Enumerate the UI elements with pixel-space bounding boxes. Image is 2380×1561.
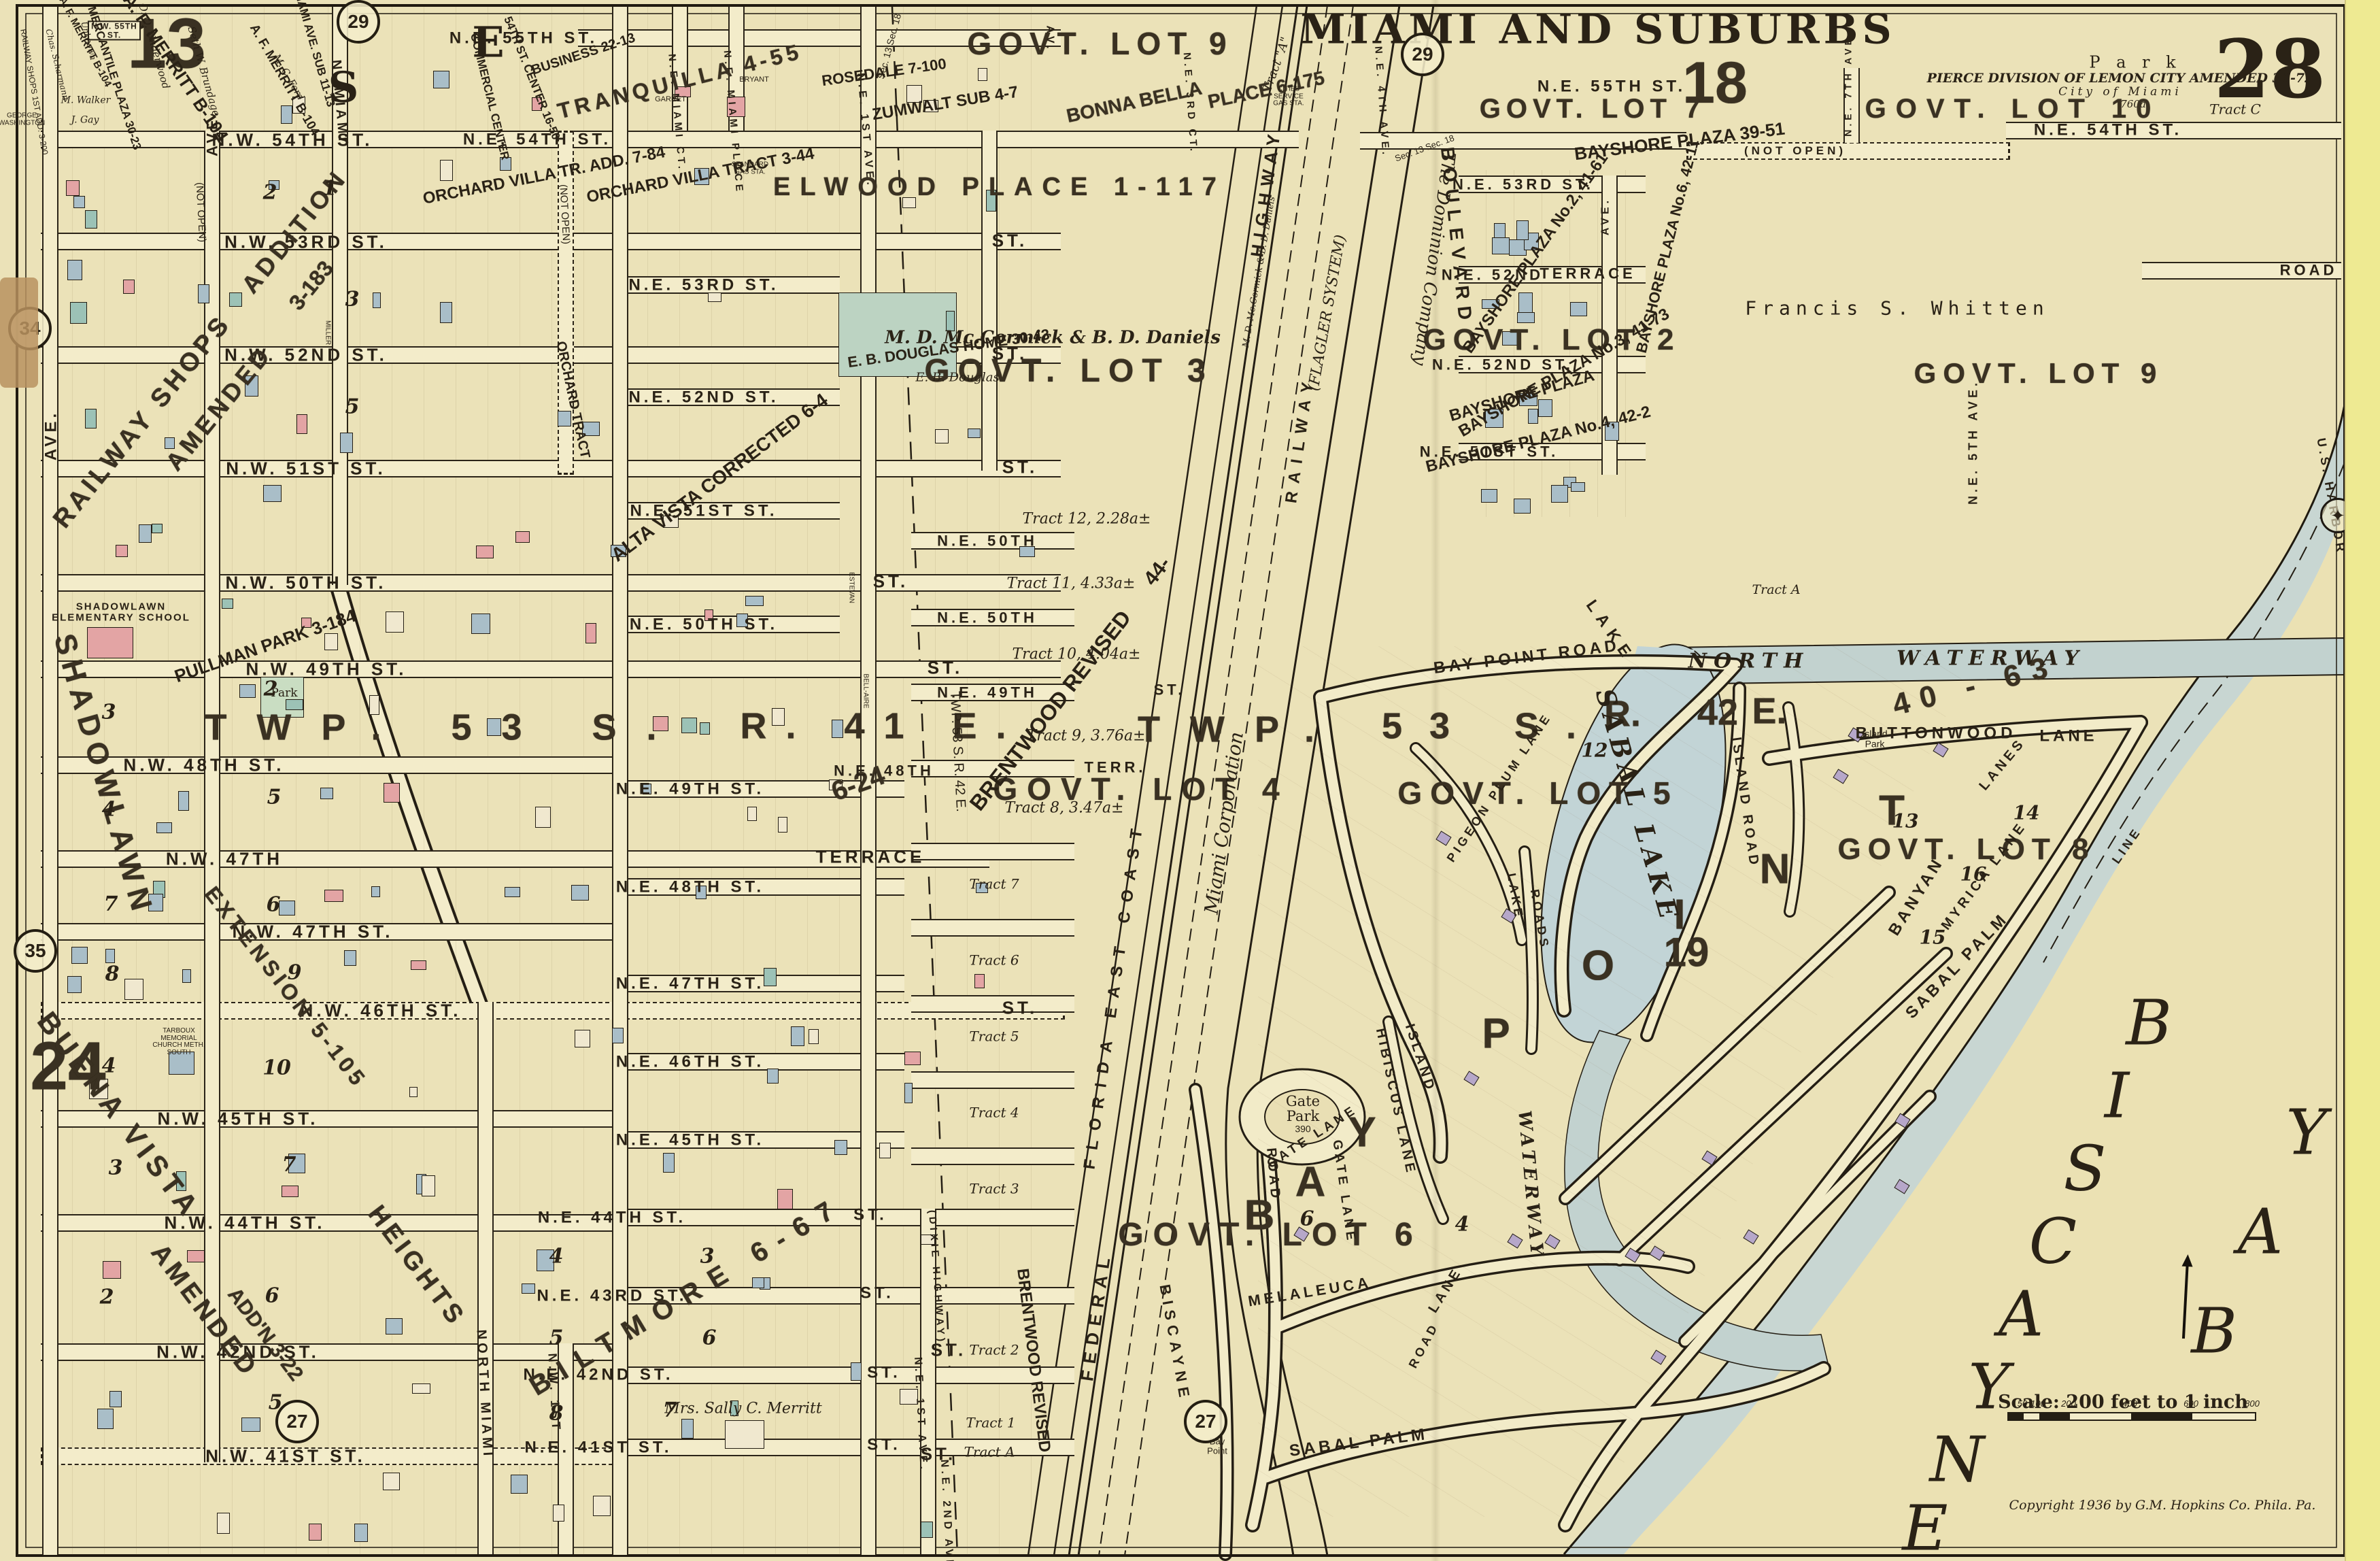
pierce-division-label: PIERCE DIVISION OF LEMON CITY AMENDED 31… (1927, 72, 2314, 86)
building (354, 1524, 368, 1542)
merritt-label: Mrs. Sally C. Merritt (664, 1400, 821, 1416)
block-number: 3 (345, 288, 360, 310)
building (187, 1250, 205, 1262)
building (505, 887, 520, 897)
street-ne46-stub (911, 919, 1074, 937)
street-ne42l (615, 1366, 1074, 1384)
street-label-ne52: N.E. 52ND ST. (628, 388, 779, 405)
douglas-sig: E. B. Douglas (915, 372, 999, 385)
building (344, 950, 356, 966)
street-ne43-stub (911, 1147, 1074, 1165)
building (809, 1029, 819, 1044)
st-suffix: ST. (867, 1436, 901, 1453)
building (241, 1417, 260, 1432)
tract-3-label: Tract 3 (969, 1182, 1019, 1196)
tract-4-label: Tract 4 (969, 1106, 1019, 1120)
block-number: 7 (663, 1399, 677, 1421)
building (1481, 489, 1498, 503)
building (384, 783, 399, 803)
block-number: 2 (263, 182, 277, 203)
badge-27-a: 27 (275, 1400, 319, 1443)
building (440, 302, 452, 324)
street-label-ne46: N.E. 46TH ST. (616, 1053, 764, 1070)
plate-number-bay: 19 (1664, 931, 1710, 974)
block-number: 7 (282, 1154, 296, 1175)
building (921, 1522, 934, 1539)
street-nw51 (41, 460, 1061, 477)
plat-map-sheet: 13 28 24 18 19 MIAMI AND SUBURBS P a r k… (0, 0, 2380, 1561)
block-number: 14 (2013, 803, 2040, 822)
tract-a-pierce: Tract A (1752, 584, 1800, 597)
building (1528, 409, 1538, 424)
building (585, 623, 596, 643)
church-label: TARBOUX MEMORIAL CHURCH METH. SOUTH (150, 1028, 207, 1056)
building (324, 633, 338, 650)
twp-east-42: 42 (1697, 694, 1738, 733)
govt-lot-9-east: GOVT. LOT 9 (1914, 358, 2164, 388)
building (217, 1513, 230, 1534)
gate-park-390: 390 (1295, 1124, 1310, 1135)
building (515, 531, 530, 543)
building (296, 414, 307, 433)
map-title: MIAMI AND SUBURBS (1300, 9, 1895, 52)
building (778, 817, 787, 833)
building (320, 788, 333, 800)
not-open-vert-1: (NOT OPEN) (558, 184, 571, 245)
ave-label-ne5: N.E. 5TH AVE. (1967, 380, 1980, 505)
block-number: 6 (702, 1327, 717, 1349)
biscayne-letter-0: B (2126, 991, 2172, 1057)
estevan-label: ESTEVAN (847, 572, 855, 603)
block-number: 6 (267, 894, 281, 916)
twp-53s-west: TWP. 53 S. (204, 709, 686, 748)
page-edge (2345, 0, 2380, 1561)
building (904, 1083, 913, 1103)
govt-lot-7: GOVT. LOT 7 (1480, 95, 1705, 123)
building (156, 822, 172, 833)
building (239, 684, 255, 699)
building (139, 524, 152, 543)
building (97, 1409, 114, 1429)
block-number: 3 (102, 701, 116, 723)
st-suffix: ST. (867, 1364, 901, 1381)
building (109, 1391, 122, 1408)
street-label-ne54: N.E. 54TH ST. (463, 131, 611, 148)
st-suffix: ST. (873, 572, 909, 590)
block-number: 8 (105, 963, 120, 985)
building (879, 1143, 891, 1158)
block-number: 10 (262, 1057, 291, 1079)
badge-29-a: 29 (337, 0, 380, 44)
building (386, 1318, 403, 1335)
scale-tick-200: 200 (2061, 1398, 2076, 1409)
building (282, 1186, 299, 1197)
building (371, 886, 380, 897)
scale-segment (2039, 1413, 2070, 1420)
st-suffix: ST. (992, 231, 1028, 250)
building (752, 1277, 765, 1288)
street-label-nw49: N.W. 49TH ST. (246, 660, 407, 678)
bellaire-label: BELL-AIRE (862, 673, 869, 708)
copyright-label: Copyright 1936 by G.M. Hopkins Co. Phila… (2009, 1499, 2316, 1513)
ave-label-av: AV. (1044, 25, 1055, 52)
block-number: 16 (1960, 864, 1987, 884)
scale-segment (2009, 1413, 2024, 1420)
building (71, 947, 88, 963)
scale-segment (2192, 1413, 2254, 1420)
building (553, 1505, 564, 1522)
building (222, 599, 233, 609)
building (1551, 485, 1568, 503)
scale-tick-600: 600 (2183, 1398, 2198, 1409)
street-label-ne55-r: N.E. 55TH ST. (1537, 78, 1686, 95)
street-label-nw47terr-b: TERRACE (816, 847, 925, 866)
building (1571, 482, 1585, 492)
standard-gas-label: STANDARD GAS STA. (726, 162, 774, 176)
building (182, 969, 191, 982)
building (747, 807, 757, 821)
street-label-nw50: N.W. 50TH ST. (226, 573, 387, 592)
street-ne44-stub (911, 1071, 1074, 1089)
twp-east-e: E. (1752, 692, 1786, 731)
street-ne54-notopen (1686, 142, 2010, 160)
street-label-nw48: N.W. 48TH ST. (124, 756, 285, 774)
street-label-nw47terr: N.W. 47TH (166, 850, 283, 868)
building (324, 890, 343, 902)
bay-letter-y: Y (2286, 1101, 2328, 1166)
r41e-west: R. 41 E. (740, 707, 1025, 746)
block-number: 4 (102, 1055, 116, 1077)
street-label-ne44: N.E. 44TH ST. (538, 1209, 686, 1226)
building (681, 1419, 694, 1439)
building (178, 791, 189, 811)
block-number: 9 (288, 962, 302, 984)
building (1516, 220, 1529, 240)
mccormick-daniels-label: M. D. Mc.Cormick & B. D. Daniels (885, 329, 1221, 347)
street-label-ne49: N.E. 49TH ST. (616, 780, 764, 797)
biscayne-letter-4: A (1999, 1282, 2043, 1348)
whitten-label: Francis S. Whitten (1745, 298, 2049, 318)
bay-point-letter-o: O (1582, 943, 1614, 988)
building (411, 960, 426, 971)
st-suffix: ST. (928, 658, 964, 677)
biscayne-letter-7: E (1902, 1496, 1948, 1561)
street-nw44 (41, 1214, 615, 1232)
scale-tick-800: 800 (2245, 1398, 2260, 1409)
building (571, 885, 589, 901)
biscayne-letter-5: Y (1969, 1355, 2010, 1421)
street-label-ne48: N.E. 48TH ST. (616, 878, 764, 895)
elwood-place-label: ELWOOD PLACE 1-117 (773, 174, 1226, 201)
st-suffix: ST. (1154, 682, 1186, 697)
block-number: 6 (1300, 1208, 1314, 1230)
ave-north-miami-lower (477, 1002, 494, 1554)
garret-label: GARRET (655, 96, 686, 104)
block-number: 3 (700, 1245, 715, 1267)
block-number: 4 (1455, 1213, 1469, 1235)
building (123, 280, 135, 294)
building (279, 901, 295, 916)
building (440, 160, 453, 182)
building (700, 722, 710, 734)
terrace-suffix: TERRACE (1540, 265, 1635, 281)
building (1538, 399, 1552, 417)
ave-label-west: AVE. (42, 410, 59, 460)
ave-west-margin (42, 7, 58, 1555)
building (764, 968, 777, 986)
biscayne-letter-2: S (2063, 1137, 2106, 1203)
govt-lot-8: GOVT. LOT 8 (1838, 834, 2096, 865)
building (575, 1030, 590, 1047)
tract-5-label: Tract 5 (969, 1030, 1019, 1044)
building (834, 1140, 847, 1155)
bay-point-letter-p: P (1482, 1011, 1510, 1056)
building (70, 302, 87, 324)
building (412, 1383, 430, 1394)
pierce-road-label: ROAD (2280, 262, 2338, 278)
school-label: SHADOWLAWN ELEMENTARY SCHOOL (43, 601, 199, 623)
biscayne-letter-1: I (2105, 1064, 2129, 1130)
building (383, 1473, 400, 1490)
building (116, 545, 128, 557)
building (422, 1175, 435, 1197)
block-number: 12 (1582, 740, 1608, 760)
scale-segment (2131, 1413, 2192, 1420)
tract-2-label: Tract 2 (969, 1343, 1019, 1358)
building (851, 1362, 862, 1381)
building (433, 71, 449, 88)
building (476, 545, 494, 558)
tract-7-label: Tract 7 (969, 877, 1019, 892)
gate-park-label: Gate Park (1276, 1094, 1330, 1124)
twp-east-53s: 53 S. (1382, 707, 1603, 746)
block-number: 5 (549, 1327, 564, 1349)
building (67, 976, 82, 993)
street-label-nw45: N.W. 45TH ST. (158, 1109, 319, 1128)
building (535, 807, 551, 828)
building (745, 596, 764, 606)
block-number: 5 (267, 786, 282, 808)
n-miami-ave-diagonal-fill (338, 585, 483, 1013)
tract-10-label: Tract 10, 4.04a± (1013, 646, 1141, 662)
street-ne47-stub (911, 843, 1074, 860)
washington-label: GEORGE WASHINGTON (0, 113, 46, 127)
building (67, 260, 82, 280)
building (281, 105, 292, 124)
building (103, 1261, 121, 1279)
building (935, 429, 949, 443)
building (409, 1087, 418, 1097)
street-label-ne45: N.E. 45TH ST. (616, 1131, 764, 1148)
badge-27-b: 27 (1184, 1400, 1227, 1443)
block-number: 4 (549, 1245, 564, 1267)
street-label-ne53: N.E. 53RD ST. (628, 276, 779, 293)
tract-11-label: Tract 11, 4.33a± (1007, 575, 1136, 591)
badge-35: 35 (14, 929, 57, 973)
scale-tick-100: 100 (2030, 1398, 2045, 1409)
street-label-ne41: N.E. 41ST ST. (524, 1439, 672, 1456)
merritt-building (725, 1420, 764, 1449)
gay-label: J. Gay (71, 116, 99, 126)
block-number: 8 (549, 1403, 564, 1424)
building (152, 524, 163, 533)
building (978, 68, 987, 80)
bay-letter-a: A (2238, 1200, 2283, 1266)
building (340, 433, 353, 453)
miller-label: MILLER (324, 320, 331, 345)
street-label-nw41: N.W. 41ST ST. (205, 1447, 366, 1465)
street-ne45-stub (911, 995, 1074, 1013)
tract-c-label: Tract C (2209, 103, 2261, 117)
tract-9-label: Tract 9, 3.76a± (1027, 728, 1146, 743)
building (974, 974, 985, 988)
not-open-vert-2: (NOT OPEN) (194, 182, 207, 243)
north-waterway-label-1: NORTH (1688, 650, 1810, 672)
not-open-ne54: (NOT OPEN) (1744, 145, 1846, 157)
building (309, 1524, 322, 1541)
tract-1-label: Tract 1 (966, 1416, 1015, 1430)
tract-12-label: Tract 12, 2.28a± (1023, 511, 1151, 526)
ave-label-ne7: N.E. 7TH AVE. (1843, 29, 1854, 137)
street-nw42 (41, 1343, 615, 1361)
north-waterway-label-2: WATERWAY (1897, 648, 2086, 669)
building (1514, 499, 1531, 514)
building (229, 292, 242, 307)
building (471, 614, 490, 634)
govt-lot-10: GOVT. LOT 10 (1865, 95, 2161, 123)
building (1570, 302, 1587, 316)
building (124, 979, 143, 1001)
badge-29-b: 29 (1401, 33, 1444, 76)
island-park-label: Island Park (1854, 728, 1895, 748)
building (767, 1069, 779, 1084)
st-suffix: ST. (853, 1206, 887, 1223)
building (263, 485, 282, 503)
block-number: 5 (345, 396, 360, 418)
bay-point-letter-a: A (1295, 1160, 1326, 1204)
block-number: 1 (323, 178, 337, 199)
scale-segment (2024, 1413, 2039, 1420)
tract-a-label: Tract A (964, 1445, 1015, 1460)
cities-service-label: CITIES SERVICE GAS STA. (1267, 86, 1310, 107)
bay-point-letter-n: N (1760, 847, 1790, 891)
block-number: 3 (109, 1157, 123, 1179)
govt-lot-9-top: GOVT. LOT 9 (967, 27, 1233, 60)
building (66, 180, 80, 196)
street-label-ne47: N.E. 47TH ST. (616, 975, 764, 992)
building (85, 210, 97, 229)
building (1492, 237, 1510, 254)
street-label-nw51: N.W. 51ST ST. (226, 459, 386, 477)
terr-suffix: TERR. (1085, 759, 1146, 775)
street-label-ne48-stub: N.E. 48TH (834, 762, 934, 778)
building (373, 292, 381, 308)
street-label-ne50-stub-b: N.E. 50TH (937, 609, 1038, 625)
buttonwood-lane-label: LANE (2039, 727, 2097, 744)
st-suffix: ST. (860, 1284, 894, 1301)
scale-tick-400: 400 (2122, 1398, 2137, 1409)
building (85, 409, 97, 428)
building (777, 1189, 793, 1209)
biscayne-letter-6: N (1930, 1428, 1985, 1494)
bay-letter-b: B (2191, 1299, 2237, 1365)
tract-6-label: Tract 6 (969, 954, 1019, 968)
block-number: 13 (1892, 811, 1919, 830)
tract-8-label: Tract 8, 3.47a± (1005, 800, 1124, 816)
block-number: 7 (104, 893, 118, 915)
scale-bar (2007, 1412, 2256, 1421)
plate-number: 28 (2214, 27, 2326, 112)
building (198, 284, 209, 303)
street-label-ne50: N.E. 50TH ST. (630, 616, 778, 633)
building (904, 1052, 921, 1065)
scale-tick-50: 50 (2018, 1398, 2027, 1409)
building (511, 1475, 528, 1494)
street-label-ne50-stub-a: N.E. 50TH (937, 533, 1038, 548)
school-building (87, 627, 133, 658)
building (1518, 292, 1533, 312)
building (968, 429, 981, 439)
block-number: 2 (264, 678, 278, 700)
scale-segment (2070, 1413, 2131, 1420)
block-number: 4 (102, 799, 116, 820)
building (593, 1496, 611, 1515)
block-number: 6 (265, 1285, 279, 1307)
bryant-label: BRYANT (739, 76, 769, 84)
building (105, 949, 114, 963)
biscayne-letter-3: C (2029, 1209, 2077, 1275)
building (73, 196, 86, 208)
block-number: 2 (100, 1286, 114, 1308)
building (522, 1283, 535, 1293)
street-label-ne49-stub: N.E. 49TH (937, 684, 1038, 700)
block-number: 15 (1920, 927, 1946, 947)
building (386, 611, 404, 633)
street-nw53 (41, 233, 1061, 250)
building (612, 1028, 624, 1044)
street-label-ne54-r: N.E. 54TH ST. (2034, 121, 2182, 138)
st-suffix: ST. (1002, 458, 1038, 476)
st-suffix: ST. (1002, 998, 1038, 1017)
tape-stain (0, 278, 38, 388)
park-label: P a r k (2089, 54, 2181, 71)
building (663, 1153, 675, 1172)
building (1517, 312, 1535, 323)
building (791, 1026, 804, 1046)
ave-label-bayshore: AVE. (1601, 197, 1612, 235)
